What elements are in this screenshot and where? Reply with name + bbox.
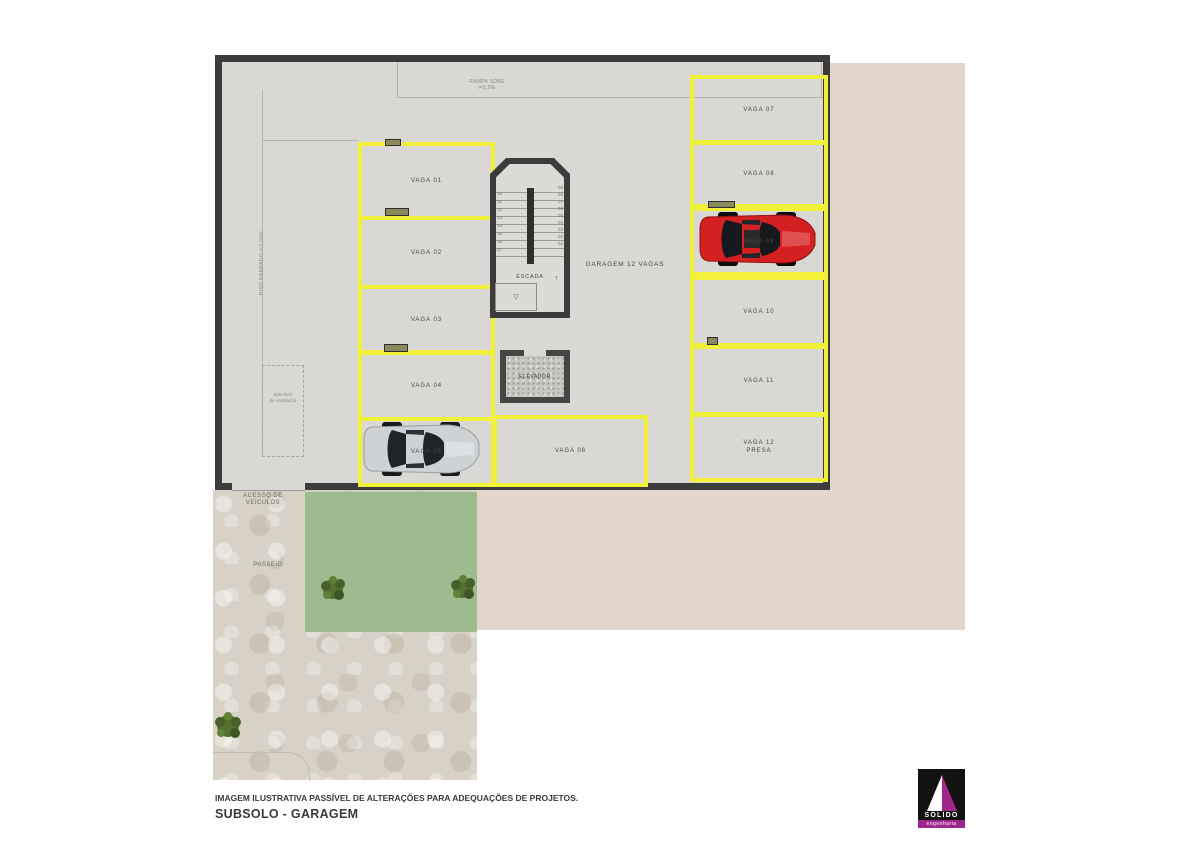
grille-icon <box>707 337 718 345</box>
elevator-shaft: ELEVADOR <box>500 350 570 403</box>
parking-space-label: VAGA 04 <box>411 382 442 390</box>
guide-line <box>262 140 358 141</box>
page-title: SUBSOLO - GARAGEM <box>215 807 358 821</box>
company-logo: SÓLIDO engenharia <box>918 769 965 829</box>
parking-space-label: VAGA 06 <box>555 447 586 455</box>
parking-space-label: VAGA 02 <box>411 249 442 257</box>
parking-space-label: VAGA 11 <box>744 377 775 385</box>
tree-icon <box>446 571 480 605</box>
parking-space-07: VAGA 07 <box>690 75 828 145</box>
dimension-tick <box>397 62 398 97</box>
stair-label: ESCADA <box>490 274 570 280</box>
garage-count-label: GARAGEM 12 VAGAS <box>555 261 695 268</box>
parking-space-label: VAGA 01 <box>411 177 442 185</box>
parking-space-11: VAGA 11 <box>690 345 828 417</box>
parking-space-label-line2: PRESA <box>746 448 771 454</box>
parking-space-03: VAGA 03 <box>358 285 495 355</box>
parking-space-06: VAGA 06 <box>493 415 648 487</box>
vehicle-access-line2: VEÍCULOS <box>246 500 280 506</box>
vehicle-access-line1: ACESSO DE <box>243 493 283 499</box>
curb-line <box>213 752 310 781</box>
logo-background: SÓLIDO <box>918 769 965 820</box>
grille-icon <box>385 208 409 216</box>
stair-step-numbers-left: 10 11 12 13 14 15 16 17 <box>497 190 502 254</box>
parking-space-04: VAGA 04 <box>358 350 495 421</box>
parking-space-01: VAGA 01 <box>358 142 495 220</box>
parking-space-label-line1: VAGA 12 <box>743 440 774 446</box>
ventilation-area: área livre de ventilação <box>262 365 304 457</box>
ventilation-line2: de ventilação <box>270 398 297 403</box>
parking-space-label: VAGA 08 <box>743 170 774 178</box>
floorplan-sheet: ACESSO DE VEÍCULOS PASSEIO <box>0 0 1200 847</box>
parking-space-label: VAGA 10 <box>743 308 774 316</box>
parking-space-label: VAGA 09 <box>743 238 774 246</box>
sloped-floor-label: PISO RAMPADO i=2,00% <box>259 208 265 318</box>
parking-space-12: VAGA 12 PRESA <box>690 412 828 482</box>
tree-icon <box>316 572 350 606</box>
parking-space-02: VAGA 02 <box>358 216 495 289</box>
drain-icon: ▽ <box>513 293 518 301</box>
stairwell: 10 11 12 13 14 15 16 17 09 08 07 06 05 0… <box>490 158 570 318</box>
stair-up-icon: ↑ <box>555 275 559 282</box>
logo-name: SÓLIDO <box>918 812 965 819</box>
ventilation-line1: área livre <box>274 392 293 397</box>
parking-space-08: VAGA 08 <box>690 140 828 208</box>
tree-icon <box>211 709 245 743</box>
grass-area <box>305 492 477 632</box>
stair-utility-room: ▽ <box>495 283 537 311</box>
parking-space-label: VAGA 03 <box>411 316 442 324</box>
stair-step-numbers-right: 09 08 07 06 05 04 03 02 01 <box>558 184 563 247</box>
grille-icon <box>708 201 735 208</box>
ramp-label-line2: i=5,5% <box>478 85 495 91</box>
elevator-label: ELEVADOR <box>519 374 551 380</box>
stair-handrail <box>527 188 534 264</box>
grille-icon <box>385 139 401 146</box>
logo-strip: engenharia <box>918 820 965 828</box>
parking-space-label: VAGA 12 PRESA <box>743 439 774 455</box>
ramp-label: RAMPA SOBE i=5,5% <box>437 79 537 91</box>
vehicle-access-label: ACESSO DE VEÍCULOS <box>223 493 303 507</box>
parking-space-label: VAGA 07 <box>743 106 774 114</box>
logo-subtitle: engenharia <box>926 821 956 827</box>
sidewalk-label: PASSEIO <box>238 562 298 569</box>
garage-plan: RAMPA SOBE i=5,5% PISO RAMPADO i=2,00% á… <box>215 55 830 490</box>
elevator-door-opening <box>524 350 546 356</box>
disclaimer-text: IMAGEM ILUSTRATIVA PASSÍVEL DE ALTERAÇÕE… <box>215 793 578 803</box>
elevator-cab: ELEVADOR <box>506 356 564 397</box>
garage-entrance-opening <box>232 483 305 491</box>
parking-space-label: VAGA 05 <box>411 448 442 456</box>
grille-icon <box>384 344 408 352</box>
ventilation-label: área livre de ventilação <box>263 392 303 404</box>
